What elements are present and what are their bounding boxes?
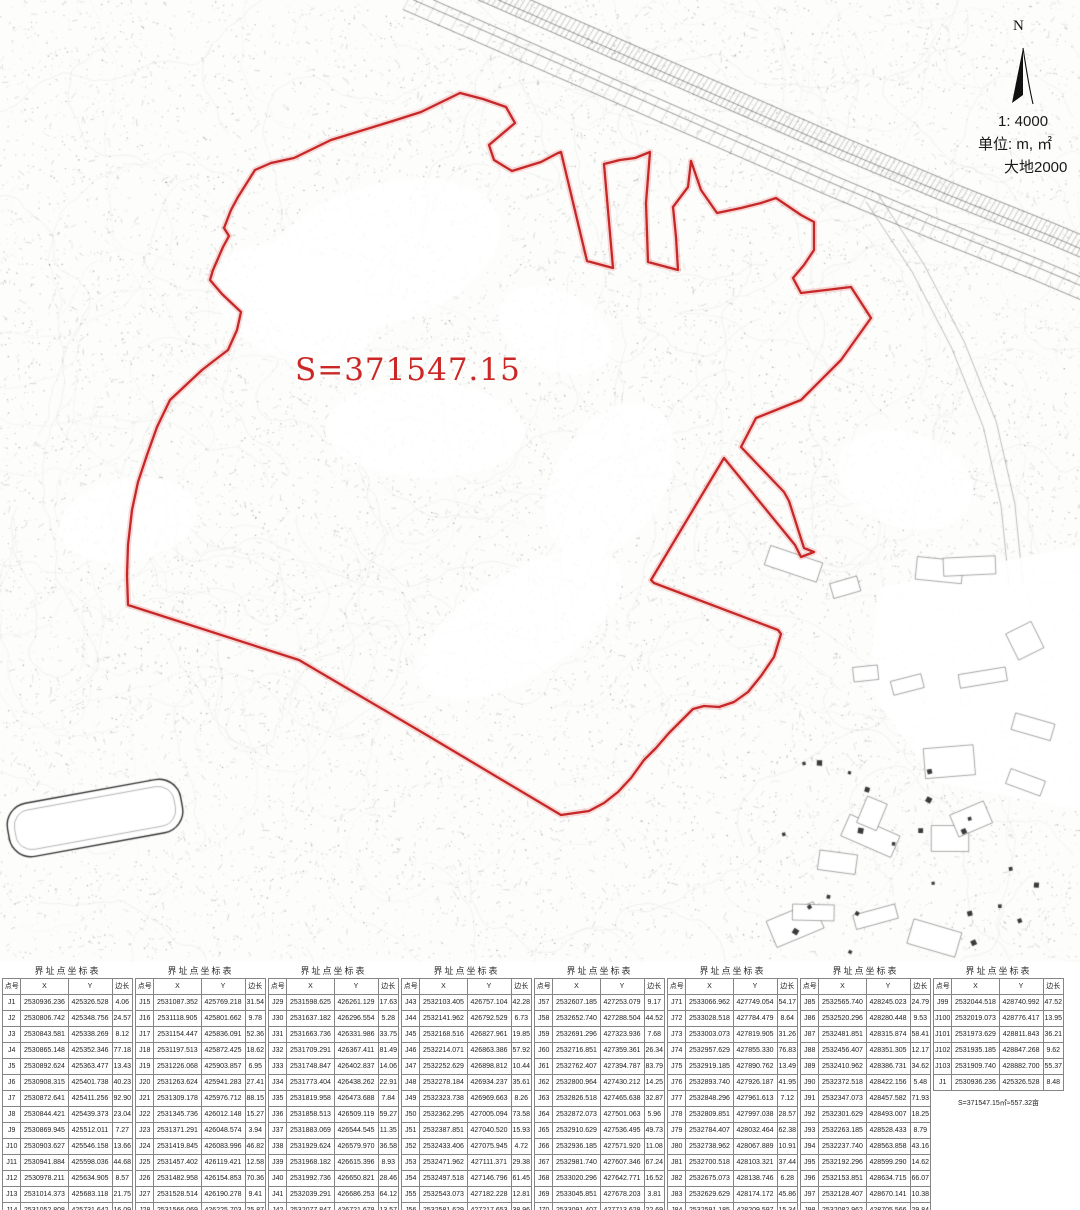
coord-x-cell: 2531087.352	[154, 995, 201, 1011]
point-id-cell: J103	[934, 1059, 952, 1075]
edge-length-cell: 8.93	[378, 1155, 398, 1171]
coord-x-cell: 2531858.513	[287, 1107, 334, 1123]
table-row: J552532543.073427182.22812.81	[402, 1187, 532, 1203]
edge-length-cell: 14.25	[644, 1075, 664, 1091]
table-row: J812532700.518428103.32137.44	[668, 1155, 798, 1171]
coord-x-cell: 2532456.407	[819, 1043, 866, 1059]
coord-x-cell: 2532039.291	[287, 1187, 334, 1203]
edge-length-cell: 14.62	[910, 1155, 930, 1171]
coord-y-cell: 427394.787	[600, 1059, 644, 1075]
edge-length-cell: 31.54	[245, 995, 265, 1011]
coord-y-cell: 426261.129	[334, 995, 378, 1011]
table-row: J712533066.962427749.05454.17	[668, 995, 798, 1011]
coordinate-grid: 点号XY边长J572532607.185427253.0799.17J58253…	[534, 978, 665, 1210]
coord-y-cell: 426863.386	[467, 1043, 511, 1059]
table-row: J32530843.581425338.2698.12	[3, 1027, 133, 1043]
edge-length-cell: 44.52	[644, 1011, 664, 1027]
point-id-cell: J55	[402, 1187, 420, 1203]
point-id-cell: J91	[801, 1091, 819, 1107]
coord-x-cell: 2532082.962	[819, 1203, 866, 1210]
coord-y-cell: 427040.520	[467, 1123, 511, 1139]
coord-x-cell: 2530869.945	[21, 1123, 68, 1139]
edge-length-cell: 7.27	[112, 1123, 132, 1139]
point-id-cell: J65	[535, 1123, 553, 1139]
point-id-cell: J22	[136, 1107, 154, 1123]
coord-y-cell: 425439.373	[68, 1107, 112, 1123]
edge-length-cell: 8.12	[112, 1027, 132, 1043]
table-row: J202531263.624425941.28327.41	[136, 1075, 266, 1091]
coord-y-cell: 427890.762	[733, 1059, 777, 1075]
point-id-cell: J1	[934, 1075, 952, 1091]
coord-x-cell: 2530908.315	[21, 1075, 68, 1091]
table-row: J512532387.851427040.52015.93	[402, 1123, 532, 1139]
coord-y-cell: 427536.495	[600, 1123, 644, 1139]
edge-length-cell: 40.23	[112, 1075, 132, 1091]
table-row: J252531457.402426119.42112.58	[136, 1155, 266, 1171]
coord-x-cell: 2532347.073	[819, 1091, 866, 1107]
coord-x-cell: 2532103.405	[420, 995, 467, 1011]
point-id-cell: J13	[3, 1187, 21, 1203]
point-id-cell: J87	[801, 1027, 819, 1043]
point-id-cell: J21	[136, 1091, 154, 1107]
coord-y-cell: 428103.321	[733, 1155, 777, 1171]
coord-x-cell: 2532497.518	[420, 1171, 467, 1187]
coord-x-cell: 2532872.073	[553, 1107, 600, 1123]
coord-x-cell: 2531118.905	[154, 1011, 201, 1027]
table-row: J492532323.738426969.6638.26	[402, 1091, 532, 1107]
table-row: J92530869.945425512.0117.27	[3, 1123, 133, 1139]
point-id-cell: J76	[668, 1075, 686, 1091]
table-row: J982532082.962428705.56629.84	[801, 1203, 931, 1210]
edge-length-cell: 24.79	[910, 995, 930, 1011]
coord-y-cell: 426473.688	[334, 1091, 378, 1107]
coord-x-cell: 2532252.629	[420, 1059, 467, 1075]
table-group: 界址点坐标表点号XY边长J12530936.236425326.5284.06J…	[2, 964, 133, 1210]
point-id-cell: J33	[269, 1059, 287, 1075]
table-row: J452532168.516426827.96119.85	[402, 1027, 532, 1043]
point-id-cell: J101	[934, 1027, 952, 1043]
datum-text: 大地2000	[978, 156, 1078, 179]
edge-length-cell: 3.81	[644, 1187, 664, 1203]
point-id-cell: J96	[801, 1171, 819, 1187]
coord-y-cell: 427465.638	[600, 1091, 644, 1107]
point-id-cell: J100	[934, 1011, 952, 1027]
coord-x-cell: 2531419.845	[154, 1139, 201, 1155]
coord-x-cell: 2530844.421	[21, 1107, 68, 1123]
coord-y-cell: 427359.361	[600, 1043, 644, 1059]
coord-x-cell: 2532263.185	[819, 1123, 866, 1139]
map-legend: 1: 4000 单位: m, ㎡ 大地2000	[978, 110, 1078, 179]
coord-y-cell: 426757.104	[467, 995, 511, 1011]
coord-y-cell: 428032.464	[733, 1123, 777, 1139]
edge-length-cell: 4.06	[112, 995, 132, 1011]
point-id-cell: J99	[934, 995, 952, 1011]
edge-length-cell: 6.95	[245, 1059, 265, 1075]
edge-length-cell: 13.57	[378, 1203, 398, 1210]
point-id-cell: J37	[269, 1123, 287, 1139]
coord-y-cell: 427855.330	[733, 1043, 777, 1059]
coord-x-cell: 2531371.291	[154, 1123, 201, 1139]
coord-y-cell: 427819.905	[733, 1027, 777, 1043]
edge-length-cell: 21.75	[112, 1187, 132, 1203]
coord-y-cell: 425683.118	[68, 1187, 112, 1203]
coord-y-cell: 426934.237	[467, 1075, 511, 1091]
table-group: 界址点坐标表点号XY边长J572532607.185427253.0799.17…	[534, 964, 665, 1210]
coord-x-cell: 2531929.624	[287, 1139, 334, 1155]
coord-x-cell: 2532323.738	[420, 1091, 467, 1107]
edge-length-cell: 54.17	[777, 995, 797, 1011]
edge-length-cell: 34.62	[910, 1059, 930, 1075]
edge-length-cell: 77.18	[112, 1043, 132, 1059]
table-group-title: 界址点坐标表	[401, 964, 532, 978]
point-id-cell: J75	[668, 1059, 686, 1075]
coord-y-cell: 426721.678	[334, 1203, 378, 1210]
column-header: 边长	[378, 979, 398, 995]
point-id-cell: J31	[269, 1027, 287, 1043]
column-header: 点号	[136, 979, 154, 995]
point-id-cell: J64	[535, 1107, 553, 1123]
table-row: J62530908.315425401.73840.23	[3, 1075, 133, 1091]
column-header: 边长	[245, 979, 265, 995]
point-id-cell: J28	[136, 1203, 154, 1210]
coord-y-cell: 426402.837	[334, 1059, 378, 1075]
coord-y-cell: 427288.504	[600, 1011, 644, 1027]
point-id-cell: J47	[402, 1059, 420, 1075]
edge-length-cell: 83.79	[644, 1059, 664, 1075]
edge-length-cell: 7.84	[378, 1091, 398, 1107]
table-row: J52530892.624425363.47713.43	[3, 1059, 133, 1075]
coord-y-cell: 426296.554	[334, 1011, 378, 1027]
coord-x-cell: 2532762.407	[553, 1059, 600, 1075]
edge-length-cell: 57.92	[511, 1043, 531, 1059]
coord-x-cell: 2532691.296	[553, 1027, 600, 1043]
table-row: J832532629.629428174.17245.86	[668, 1187, 798, 1203]
table-row: J762532893.740427926.18741.95	[668, 1075, 798, 1091]
coord-x-cell: 2532214.071	[420, 1043, 467, 1059]
coord-y-cell: 428174.172	[733, 1187, 777, 1203]
coord-x-cell: 2532957.629	[686, 1043, 733, 1059]
edge-length-cell: 8.57	[112, 1171, 132, 1187]
point-id-cell: J11	[3, 1155, 21, 1171]
point-id-cell: J41	[269, 1187, 287, 1203]
edge-length-cell: 8.64	[777, 1011, 797, 1027]
coord-x-cell: 2531226.068	[154, 1059, 201, 1075]
coord-x-cell: 2531968.182	[287, 1155, 334, 1171]
edge-length-cell: 12.81	[511, 1187, 531, 1203]
table-row: J952532192.296428599.29014.62	[801, 1155, 931, 1171]
edge-length-cell: 22.91	[378, 1075, 398, 1091]
edge-length-cell: 4.72	[511, 1139, 531, 1155]
table-row: J602532716.851427359.36126.34	[535, 1043, 665, 1059]
table-row: J532532471.962427111.37129.38	[402, 1155, 532, 1171]
column-header: X	[686, 979, 733, 995]
point-id-cell: J10	[3, 1139, 21, 1155]
table-row: J232531371.291426048.5743.94	[136, 1123, 266, 1139]
coord-y-cell: 426438.262	[334, 1075, 378, 1091]
coord-y-cell: 426154.853	[201, 1171, 245, 1187]
point-id-cell: J39	[269, 1155, 287, 1171]
point-id-cell: J66	[535, 1139, 553, 1155]
point-id-cell: J92	[801, 1107, 819, 1123]
column-header: X	[21, 979, 68, 995]
coord-x-cell: 2531263.624	[154, 1075, 201, 1091]
point-id-cell: J83	[668, 1187, 686, 1203]
coord-y-cell: 426509.119	[334, 1107, 378, 1123]
point-id-cell: J49	[402, 1091, 420, 1107]
coord-y-cell: 425976.712	[201, 1091, 245, 1107]
point-id-cell: J61	[535, 1059, 553, 1075]
coord-x-cell: 2531345.736	[154, 1107, 201, 1123]
edge-length-cell: 36.21	[1043, 1027, 1063, 1043]
table-row: J752532919.185427890.76213.49	[668, 1059, 798, 1075]
edge-length-cell: 7.68	[644, 1027, 664, 1043]
table-row: J482532278.184426934.23735.61	[402, 1075, 532, 1091]
coord-x-cell: 2532410.962	[819, 1059, 866, 1075]
point-id-cell: J72	[668, 1011, 686, 1027]
table-row: J802532738.962428067.88910.91	[668, 1139, 798, 1155]
point-id-cell: J44	[402, 1011, 420, 1027]
column-header: X	[819, 979, 866, 995]
coord-y-cell: 427075.945	[467, 1139, 511, 1155]
point-id-cell: J98	[801, 1203, 819, 1210]
edge-length-cell: 22.69	[644, 1203, 664, 1210]
coord-y-cell: 427430.212	[600, 1075, 644, 1091]
coord-y-cell: 428705.566	[866, 1203, 910, 1210]
coord-y-cell: 426367.411	[334, 1043, 378, 1059]
edge-length-cell: 3.94	[245, 1123, 265, 1139]
edge-length-cell: 28.57	[777, 1107, 797, 1123]
edge-length-cell: 29.84	[910, 1203, 930, 1210]
point-id-cell: J82	[668, 1171, 686, 1187]
table-row: J12530936.236425326.5284.06	[3, 995, 133, 1011]
table-row: J352531819.958426473.6887.84	[269, 1091, 399, 1107]
point-id-cell: J90	[801, 1075, 819, 1091]
table-row: J12530936.236425326.5288.48	[934, 1075, 1064, 1091]
point-id-cell: J69	[535, 1187, 553, 1203]
point-id-cell: J14	[3, 1203, 21, 1210]
coord-y-cell: 426898.812	[467, 1059, 511, 1075]
coord-y-cell: 425411.256	[68, 1091, 112, 1107]
table-group: 界址点坐标表点号XY边长J432532103.405426757.10442.2…	[401, 964, 532, 1210]
point-id-cell: J34	[269, 1075, 287, 1091]
column-header: Y	[866, 979, 910, 995]
edge-length-cell: 5.96	[644, 1107, 664, 1123]
point-id-cell: J36	[269, 1107, 287, 1123]
edge-length-cell: 19.85	[511, 1027, 531, 1043]
coord-y-cell: 428067.889	[733, 1139, 777, 1155]
edge-length-cell: 31.26	[777, 1027, 797, 1043]
coord-y-cell: 426686.253	[334, 1187, 378, 1203]
coord-y-cell: 425326.528	[68, 995, 112, 1011]
coord-x-cell: 2532481.851	[819, 1027, 866, 1043]
table-row: J642532872.073427501.0635.96	[535, 1107, 665, 1123]
coord-x-cell: 2532826.518	[553, 1091, 600, 1107]
table-row: J132531014.373425683.11821.75	[3, 1187, 133, 1203]
coord-y-cell: 428847.268	[999, 1043, 1043, 1059]
coord-x-cell: 2532629.629	[686, 1187, 733, 1203]
coord-x-cell: 2532153.851	[819, 1171, 866, 1187]
coord-x-cell: 2532301.629	[819, 1107, 866, 1123]
coord-y-cell: 428315.874	[866, 1027, 910, 1043]
point-id-cell: J26	[136, 1171, 154, 1187]
table-row: J142531052.808425731.64216.09	[3, 1203, 133, 1210]
coord-x-cell: 2531748.847	[287, 1059, 334, 1075]
edge-length-cell: 15.34	[777, 1203, 797, 1210]
table-row: J622532800.964427430.21214.25	[535, 1075, 665, 1091]
table-row: J262531482.958426154.85370.36	[136, 1171, 266, 1187]
coordinate-table: 界址点坐标表点号XY边长J12530936.236425326.5284.06J…	[0, 962, 1080, 1210]
coord-y-cell: 425903.857	[201, 1059, 245, 1075]
coord-y-cell: 428386.731	[866, 1059, 910, 1075]
edge-length-cell: 32.87	[644, 1091, 664, 1107]
table-row: J472532252.629426898.81210.44	[402, 1059, 532, 1075]
coord-y-cell: 427005.094	[467, 1107, 511, 1123]
north-label: N	[1013, 18, 1024, 35]
coord-x-cell: 2532044.518	[952, 995, 999, 1011]
edge-length-cell: 58.41	[910, 1027, 930, 1043]
table-row: J182531197.513425872.42518.62	[136, 1043, 266, 1059]
point-id-cell: J9	[3, 1123, 21, 1139]
coordinate-grid: 点号XY边长J712533066.962427749.05454.17J7225…	[667, 978, 798, 1210]
edge-length-cell: 13.49	[777, 1059, 797, 1075]
table-group-title: 界址点坐标表	[800, 964, 931, 978]
coord-x-cell: 2531457.402	[154, 1155, 201, 1171]
point-id-cell: J1	[3, 995, 21, 1011]
area-label: S=371547.15	[295, 352, 521, 388]
coord-y-cell: 428599.290	[866, 1155, 910, 1171]
table-group-title: 界址点坐标表	[667, 964, 798, 978]
edge-length-cell: 13.66	[112, 1139, 132, 1155]
table-row: J462532214.071426863.38657.92	[402, 1043, 532, 1059]
column-header: 点号	[3, 979, 21, 995]
coord-x-cell: 2530843.581	[21, 1027, 68, 1043]
table-row: J312531663.736426331.98633.75	[269, 1027, 399, 1043]
coord-y-cell: 427961.613	[733, 1091, 777, 1107]
table-row: J402531992.736426650.82128.46	[269, 1171, 399, 1187]
coord-x-cell: 2532910.629	[553, 1123, 600, 1139]
column-header: X	[420, 979, 467, 995]
point-id-cell: J19	[136, 1059, 154, 1075]
edge-length-cell: 9.53	[910, 1011, 930, 1027]
column-header: 点号	[934, 979, 952, 995]
coord-y-cell: 428493.007	[866, 1107, 910, 1123]
table-row: J882532456.407428351.30512.17	[801, 1043, 931, 1059]
table-group: 界址点坐标表点号XY边长J152531087.352425769.21831.5…	[135, 964, 266, 1210]
point-id-cell: J73	[668, 1027, 686, 1043]
coord-y-cell: 428209.597	[733, 1203, 777, 1210]
table-row: J502532362.295427005.09473.58	[402, 1107, 532, 1123]
point-id-cell: J68	[535, 1171, 553, 1187]
table-row: J282531566.069426225.70325.87	[136, 1203, 266, 1210]
edge-length-cell: 33.75	[378, 1027, 398, 1043]
coord-x-cell: 2532372.518	[819, 1075, 866, 1091]
column-header: X	[154, 979, 201, 995]
coord-x-cell: 2533045.851	[553, 1187, 600, 1203]
coord-x-cell: 2530865.148	[21, 1043, 68, 1059]
point-id-cell: J67	[535, 1155, 553, 1171]
table-row: J582532652.740427288.50444.52	[535, 1011, 665, 1027]
coord-y-cell: 427678.203	[600, 1187, 644, 1203]
coord-x-cell: 2533020.296	[553, 1171, 600, 1187]
edge-length-cell: 7.12	[777, 1091, 797, 1107]
coord-x-cell: 2532784.407	[686, 1123, 733, 1139]
coord-x-cell: 2531637.182	[287, 1011, 334, 1027]
table-row: J272531528.514426190.2789.41	[136, 1187, 266, 1203]
table-row: J912532347.073428457.58271.93	[801, 1091, 931, 1107]
coord-y-cell: 427607.346	[600, 1155, 644, 1171]
coord-x-cell: 2530978.211	[21, 1171, 68, 1187]
coordinate-grid: 点号XY边长J852532565.740428245.02324.79J8625…	[800, 978, 931, 1210]
edge-length-cell: 62.38	[777, 1123, 797, 1139]
table-row: J782532809.851427997.03828.57	[668, 1107, 798, 1123]
point-id-cell: J53	[402, 1155, 420, 1171]
edge-length-cell: 59.27	[378, 1107, 398, 1123]
point-id-cell: J54	[402, 1171, 420, 1187]
coord-x-cell: 2532809.851	[686, 1107, 733, 1123]
table-row: J942532237.740428563.85843.16	[801, 1139, 931, 1155]
point-id-cell: J17	[136, 1027, 154, 1043]
coord-x-cell: 2531663.736	[287, 1027, 334, 1043]
coord-y-cell: 427323.936	[600, 1027, 644, 1043]
edge-length-cell: 88.15	[245, 1091, 265, 1107]
point-id-cell: J15	[136, 995, 154, 1011]
edge-length-cell: 15.93	[511, 1123, 531, 1139]
column-header: X	[553, 979, 600, 995]
table-row: J1022531935.185428847.2689.62	[934, 1043, 1064, 1059]
table-row: J892532410.962428386.73134.62	[801, 1059, 931, 1075]
coord-x-cell: 2532168.516	[420, 1027, 467, 1043]
table-row: J862532520.296428280.4489.53	[801, 1011, 931, 1027]
coord-y-cell: 425326.528	[999, 1075, 1043, 1091]
table-row: J872532481.851428315.87458.41	[801, 1027, 931, 1043]
topo-basemap	[0, 0, 1080, 962]
coord-y-cell: 427784.479	[733, 1011, 777, 1027]
coord-y-cell: 426012.148	[201, 1107, 245, 1123]
table-group-title: 界址点坐标表	[135, 964, 266, 978]
edge-length-cell: 35.61	[511, 1075, 531, 1091]
edge-length-cell: 42.28	[511, 995, 531, 1011]
coord-y-cell: 426650.821	[334, 1171, 378, 1187]
coord-y-cell: 425512.011	[68, 1123, 112, 1139]
table-group: 界址点坐标表点号XY边长J852532565.740428245.02324.7…	[800, 964, 931, 1210]
coord-y-cell: 425401.738	[68, 1075, 112, 1091]
table-row: J372531883.069426544.54511.35	[269, 1123, 399, 1139]
coord-y-cell: 427146.796	[467, 1171, 511, 1187]
scale-text: 1: 4000	[978, 110, 1078, 133]
edge-length-cell: 9.41	[245, 1187, 265, 1203]
table-row: J82530844.421425439.37323.04	[3, 1107, 133, 1123]
coord-y-cell: 427111.371	[467, 1155, 511, 1171]
table-row: J332531748.847426402.83714.06	[269, 1059, 399, 1075]
edge-length-cell: 52.36	[245, 1027, 265, 1043]
edge-length-cell: 29.38	[511, 1155, 531, 1171]
coord-x-cell: 2530936.236	[952, 1075, 999, 1091]
edge-length-cell: 26.34	[644, 1043, 664, 1059]
edge-length-cell: 9.62	[1043, 1043, 1063, 1059]
point-id-cell: J86	[801, 1011, 819, 1027]
edge-length-cell: 6.28	[777, 1171, 797, 1187]
table-row: J22530806.742425348.75624.57	[3, 1011, 133, 1027]
table-row: J102530903.627425546.15813.66	[3, 1139, 133, 1155]
point-id-cell: J24	[136, 1139, 154, 1155]
table-row: J932532263.185428528.4338.79	[801, 1123, 931, 1139]
table-row: J362531858.513426509.11959.27	[269, 1107, 399, 1123]
coord-y-cell: 428634.715	[866, 1171, 910, 1187]
table-row: J322531709.291426367.41181.49	[269, 1043, 399, 1059]
coord-y-cell: 425836.091	[201, 1027, 245, 1043]
coord-x-cell: 2532675.073	[686, 1171, 733, 1187]
table-row: J972532128.407428670.14110.38	[801, 1187, 931, 1203]
